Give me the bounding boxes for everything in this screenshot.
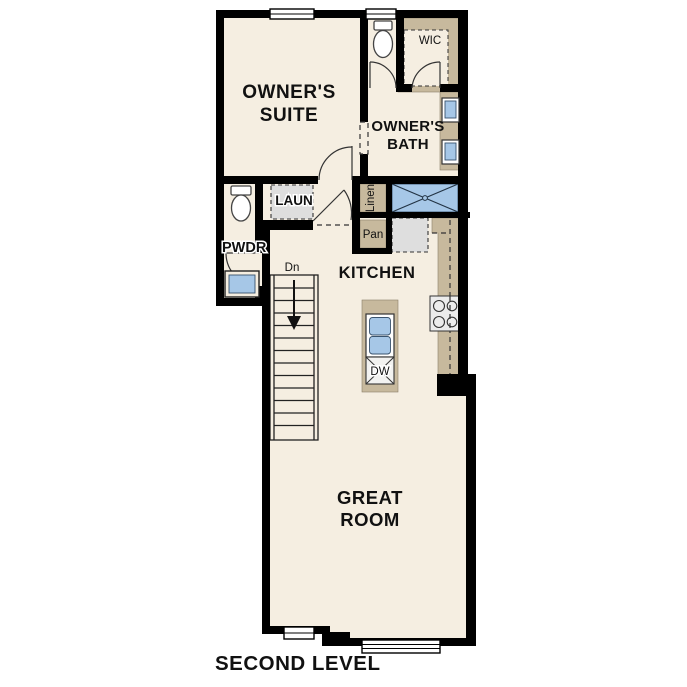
wall-laundry-bottom xyxy=(262,220,313,230)
window-bath-top xyxy=(366,9,396,19)
wall-suite-bath-divider xyxy=(360,18,368,122)
dishwasher-icon: DW xyxy=(366,357,394,384)
wall-bath-bottom xyxy=(352,176,460,184)
vanity-sink-2-icon xyxy=(442,140,459,164)
stove-icon xyxy=(430,296,460,331)
wall-pan-bottom xyxy=(352,248,392,254)
wall-shower-bottom xyxy=(386,212,470,218)
island-sink-icon xyxy=(366,314,394,357)
svg-text:BATH: BATH xyxy=(387,136,429,153)
window-suite-top xyxy=(270,9,314,19)
pantry-label: Pan xyxy=(363,229,383,241)
wall-top xyxy=(216,10,466,18)
floorplan-page: DW xyxy=(0,0,687,687)
svg-text:GREAT: GREAT xyxy=(337,487,403,508)
wall-bath-north-stub1 xyxy=(396,84,412,92)
plan-title: SECOND LEVEL xyxy=(215,652,380,675)
floorplan-svg: DW xyxy=(0,0,687,687)
laundry-label: LAUN xyxy=(275,193,313,208)
wall-right-upper xyxy=(458,10,468,378)
wic-label: WIC xyxy=(419,35,441,47)
kitchen-label: KITCHEN xyxy=(339,264,416,282)
linen-label: Linen xyxy=(365,184,377,212)
dishwasher-label: DW xyxy=(370,366,389,378)
wall-linen-left xyxy=(352,184,360,254)
window-greatroom-small xyxy=(284,627,314,639)
wall-suite-bottom xyxy=(224,176,318,184)
wall-left-lower xyxy=(262,230,270,634)
stairs-dn-label: Dn xyxy=(285,262,300,274)
svg-text:SUITE: SUITE xyxy=(260,105,318,126)
wall-toilet-wic-divider xyxy=(396,18,404,92)
pwdr-label: PWDR xyxy=(222,240,267,256)
pwdr-sink-icon xyxy=(225,271,259,297)
svg-text:OWNER'S: OWNER'S xyxy=(242,82,336,103)
wall-left-upper xyxy=(216,10,224,306)
bath-toilet-icon xyxy=(374,21,393,58)
svg-text:OWNER'S: OWNER'S xyxy=(371,118,444,135)
wall-right-lower xyxy=(466,380,476,646)
pwdr-toilet-icon xyxy=(231,186,251,221)
shower-icon xyxy=(392,184,458,212)
refrigerator-icon xyxy=(392,218,428,252)
svg-text:ROOM: ROOM xyxy=(340,509,400,530)
wall-bath-north-stub2 xyxy=(440,84,460,92)
great-room-label: GREAT ROOM xyxy=(337,487,403,530)
